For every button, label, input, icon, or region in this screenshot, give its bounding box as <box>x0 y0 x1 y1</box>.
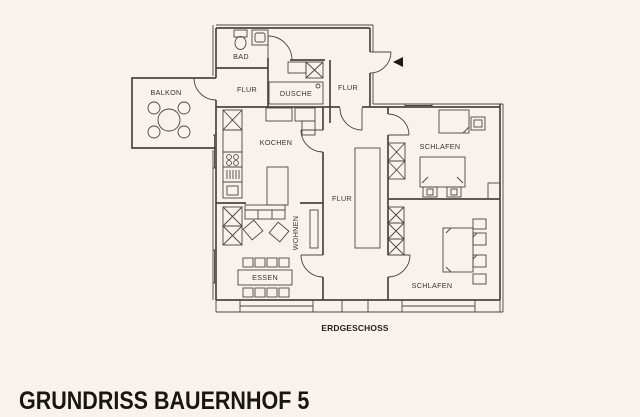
schlafen-top-door <box>388 114 409 135</box>
bad-door <box>268 36 292 60</box>
room-label-flur-entry: FLUR <box>338 83 358 92</box>
wohnen-door <box>301 255 323 277</box>
wohnen-furniture <box>223 205 318 248</box>
balcony-table-icon <box>148 102 190 138</box>
shower-head-icon <box>316 84 320 88</box>
chair-icon <box>471 117 485 130</box>
interior-walls <box>216 58 500 300</box>
hall-cabinet <box>355 148 380 248</box>
wardrobe-icon <box>388 143 405 179</box>
room-label-wohnen: WOHNEN <box>291 216 300 251</box>
bad-fixtures <box>234 30 268 50</box>
room-labels: BAD BALKON FLUR DUSCHE FLUR KOCHEN FLUR … <box>151 52 461 290</box>
room-label-flur-center: FLUR <box>332 194 352 203</box>
kitchen-fixtures <box>223 108 315 205</box>
armchair-icon <box>269 222 289 242</box>
balcony-door <box>194 78 216 100</box>
room-label-dusche: DUSCHE <box>280 89 312 98</box>
double-bed-icon <box>420 157 465 197</box>
schlafen-bottom-door <box>388 255 410 277</box>
oven-icon <box>223 182 242 198</box>
sofa-icon <box>245 205 285 219</box>
kitchen-door <box>301 130 323 152</box>
schlafen-top-furniture <box>388 110 485 197</box>
room-label-schlafen-bottom: SCHLAFEN <box>412 281 453 290</box>
sink-icon <box>252 30 268 45</box>
wardrobe-icon <box>223 207 242 245</box>
caption-erdgeschoss: ERDGESCHOSS <box>321 323 389 333</box>
room-label-bad: BAD <box>233 52 249 61</box>
room-label-balkon: BALKON <box>151 88 182 97</box>
schlafen-bottom-furniture <box>388 207 486 284</box>
page-background: BAD BALKON FLUR DUSCHE FLUR KOCHEN FLUR … <box>0 0 640 417</box>
entrance-door <box>370 52 391 73</box>
hall-door <box>340 108 362 130</box>
bath-counter <box>288 62 306 73</box>
plan-title: GRUNDRISS BAUERNHOF 5 <box>19 387 309 416</box>
floor-plan: BAD BALKON FLUR DUSCHE FLUR KOCHEN FLUR … <box>0 0 640 417</box>
armchair-icon <box>243 220 263 240</box>
desk-icon <box>439 110 469 133</box>
shaft-icon <box>306 62 323 78</box>
wardrobe-icon <box>388 207 404 255</box>
kitchen-table <box>267 167 288 205</box>
room-label-schlafen-top: SCHLAFEN <box>420 142 461 151</box>
kitchen-counter-top <box>266 108 292 121</box>
room-label-essen: ESSEN <box>252 273 278 282</box>
kitchen-counter-corner <box>295 108 315 121</box>
fridge-icon <box>223 110 242 130</box>
room-label-flur-top: FLUR <box>237 85 257 94</box>
wall-pier <box>488 183 500 199</box>
stove-icon <box>223 152 242 167</box>
kitchen-counter-side <box>302 121 315 135</box>
entrance-arrow-icon <box>393 57 403 67</box>
sink-unit-icon <box>223 167 242 182</box>
shelf-icon <box>310 210 318 248</box>
room-label-kochen: KOCHEN <box>260 138 293 147</box>
double-bed-icon <box>443 219 486 284</box>
toilet-icon <box>234 30 247 50</box>
kitchen-worktop <box>223 130 242 152</box>
